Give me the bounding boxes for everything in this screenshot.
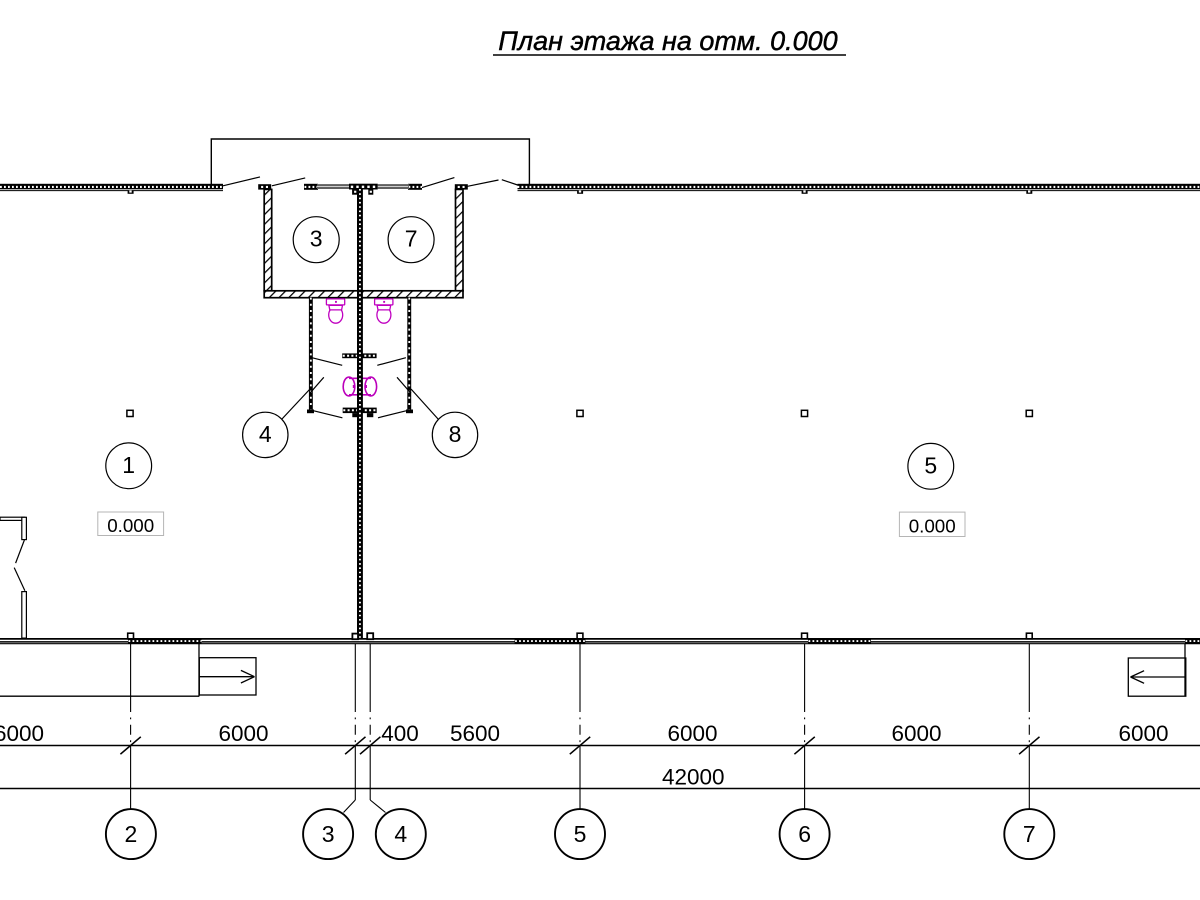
svg-text:6000: 6000: [0, 721, 44, 746]
svg-text:План этажа на отм. 0.000: План этажа на отм. 0.000: [498, 26, 837, 56]
svg-text:6000: 6000: [1118, 721, 1168, 746]
svg-text:0.000: 0.000: [107, 515, 154, 536]
svg-text:7: 7: [1023, 821, 1036, 847]
svg-text:42000: 42000: [662, 764, 725, 789]
svg-text:4: 4: [259, 421, 272, 447]
svg-text:6000: 6000: [891, 721, 941, 746]
svg-text:1: 1: [122, 452, 135, 478]
svg-text:6: 6: [798, 821, 811, 847]
svg-text:3: 3: [322, 821, 335, 847]
svg-text:7: 7: [405, 226, 418, 252]
svg-text:6000: 6000: [667, 721, 717, 746]
svg-text:400: 400: [381, 721, 419, 746]
svg-text:4: 4: [394, 821, 407, 847]
svg-text:5: 5: [574, 821, 587, 847]
svg-text:8: 8: [449, 421, 462, 447]
svg-text:6000: 6000: [218, 721, 268, 746]
svg-text:5: 5: [924, 452, 937, 478]
svg-text:2: 2: [125, 821, 138, 847]
svg-text:0.000: 0.000: [909, 516, 956, 537]
svg-text:3: 3: [310, 226, 323, 252]
svg-text:5600: 5600: [450, 721, 500, 746]
